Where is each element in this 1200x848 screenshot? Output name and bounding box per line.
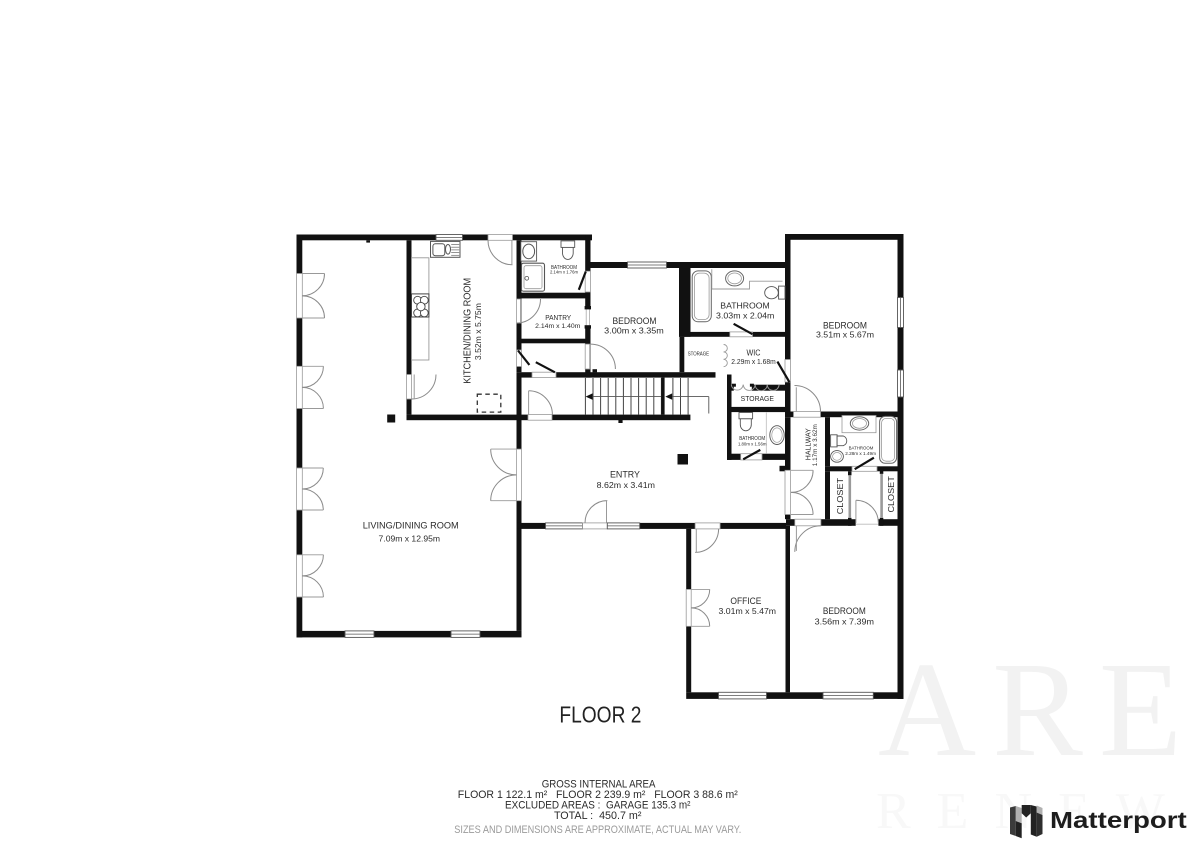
- svg-text:ENTRY: ENTRY: [610, 470, 640, 480]
- svg-text:FLOOR 2: FLOOR 2: [559, 701, 641, 727]
- svg-text:3.01m x 5.47m: 3.01m x 5.47m: [719, 607, 777, 616]
- svg-text:2.28m x 1.49m: 2.28m x 1.49m: [845, 451, 876, 456]
- svg-text:7.09m x 12.95m: 7.09m x 12.95m: [379, 534, 441, 543]
- svg-text:2.14m x 1.40m: 2.14m x 1.40m: [535, 323, 581, 330]
- svg-text:TOTAL : 450.7 m²: TOTAL : 450.7 m²: [554, 810, 642, 822]
- svg-text:PANTRY: PANTRY: [545, 313, 571, 322]
- svg-text:3.00m x 3.35m: 3.00m x 3.35m: [604, 327, 664, 336]
- svg-text:8.62m x 3.41m: 8.62m x 3.41m: [597, 481, 656, 490]
- svg-text:BEDROOM: BEDROOM: [613, 316, 657, 326]
- svg-text:LIVING/DINING ROOM: LIVING/DINING ROOM: [363, 521, 459, 531]
- svg-text:BATHROOM: BATHROOM: [720, 300, 769, 310]
- svg-text:STORAGE: STORAGE: [688, 352, 710, 358]
- svg-text:3.03m x 2.04m: 3.03m x 2.04m: [716, 311, 775, 320]
- svg-text:2.29m x 1.68m: 2.29m x 1.68m: [731, 357, 775, 366]
- svg-text:BATHROOM: BATHROOM: [739, 436, 765, 442]
- svg-text:CLOSET: CLOSET: [886, 476, 896, 512]
- svg-text:STORAGE: STORAGE: [741, 394, 774, 403]
- svg-text:3.52m x 5.75m: 3.52m x 5.75m: [474, 303, 483, 360]
- svg-text:CLOSET: CLOSET: [835, 478, 845, 514]
- svg-text:BEDROOM: BEDROOM: [823, 321, 867, 331]
- svg-text:SIZES AND DIMENSIONS ARE APPRO: SIZES AND DIMENSIONS ARE APPROXIMATE, AC…: [454, 824, 741, 836]
- svg-text:OFFICE: OFFICE: [730, 596, 761, 606]
- svg-text:WIC: WIC: [747, 347, 761, 357]
- svg-text:1.80m x 1.56m: 1.80m x 1.56m: [738, 441, 767, 447]
- svg-text:3.51m x 5.67m: 3.51m x 5.67m: [816, 331, 874, 340]
- svg-text:3.56m x 7.39m: 3.56m x 7.39m: [815, 617, 875, 626]
- svg-text:2.14m x 1.76m: 2.14m x 1.76m: [550, 270, 578, 276]
- svg-text:BEDROOM: BEDROOM: [823, 606, 866, 616]
- svg-text:1.17m x 3.62m: 1.17m x 3.62m: [812, 424, 819, 466]
- svg-text:Matterport: Matterport: [1050, 807, 1187, 833]
- svg-text:KITCHEN/DINING ROOM: KITCHEN/DINING ROOM: [462, 278, 473, 384]
